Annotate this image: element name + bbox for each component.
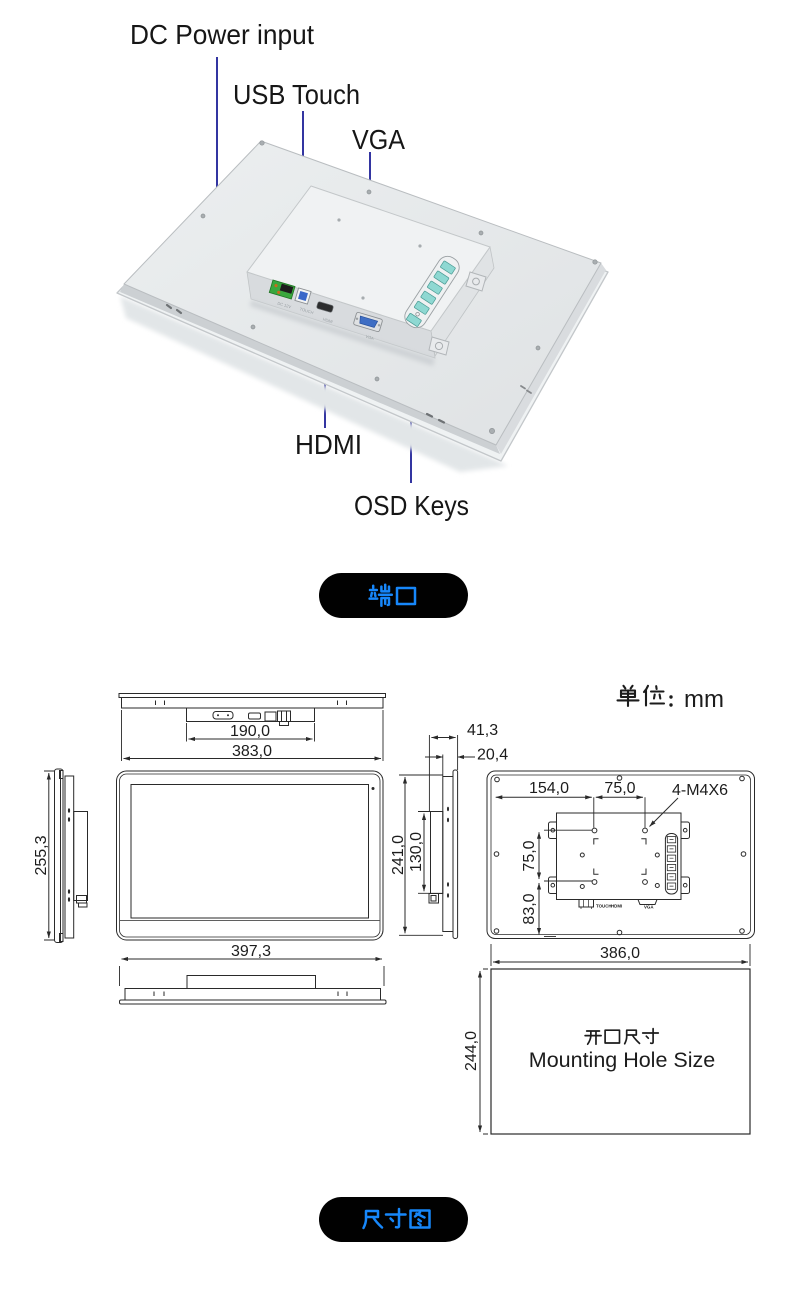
svg-text:386,0: 386,0: [600, 945, 640, 962]
svg-text:VGA: VGA: [352, 124, 405, 155]
svg-text:HDMI: HDMI: [295, 429, 362, 460]
svg-text:Mounting Hole Size: Mounting Hole Size: [529, 1048, 715, 1072]
svg-text:DC Power input: DC Power input: [130, 19, 314, 50]
svg-text:130,0: 130,0: [408, 832, 425, 872]
svg-text:190,0: 190,0: [230, 723, 270, 740]
svg-text:20,4: 20,4: [477, 747, 508, 764]
svg-text:OSD Keys: OSD Keys: [354, 490, 469, 521]
svg-text:VGA: VGA: [644, 905, 654, 910]
svg-text:TOUCH: TOUCH: [596, 904, 612, 909]
svg-text:241,0: 241,0: [390, 835, 407, 875]
svg-text:83,0: 83,0: [521, 893, 538, 924]
svg-text:383,0: 383,0: [232, 743, 272, 760]
svg-text:255,3: 255,3: [33, 835, 50, 875]
svg-text:75,0: 75,0: [521, 840, 538, 871]
svg-text:41,3: 41,3: [467, 722, 498, 739]
svg-text:244,0: 244,0: [463, 1031, 480, 1071]
svg-text:397,3: 397,3: [231, 943, 271, 960]
svg-text:75,0: 75,0: [604, 780, 635, 797]
svg-text:USB Touch: USB Touch: [233, 79, 360, 110]
svg-text:mm: mm: [684, 686, 724, 713]
svg-text:154,0: 154,0: [529, 780, 569, 797]
svg-text:HDMI: HDMI: [611, 904, 622, 909]
svg-text:4-M4X6: 4-M4X6: [672, 782, 728, 799]
